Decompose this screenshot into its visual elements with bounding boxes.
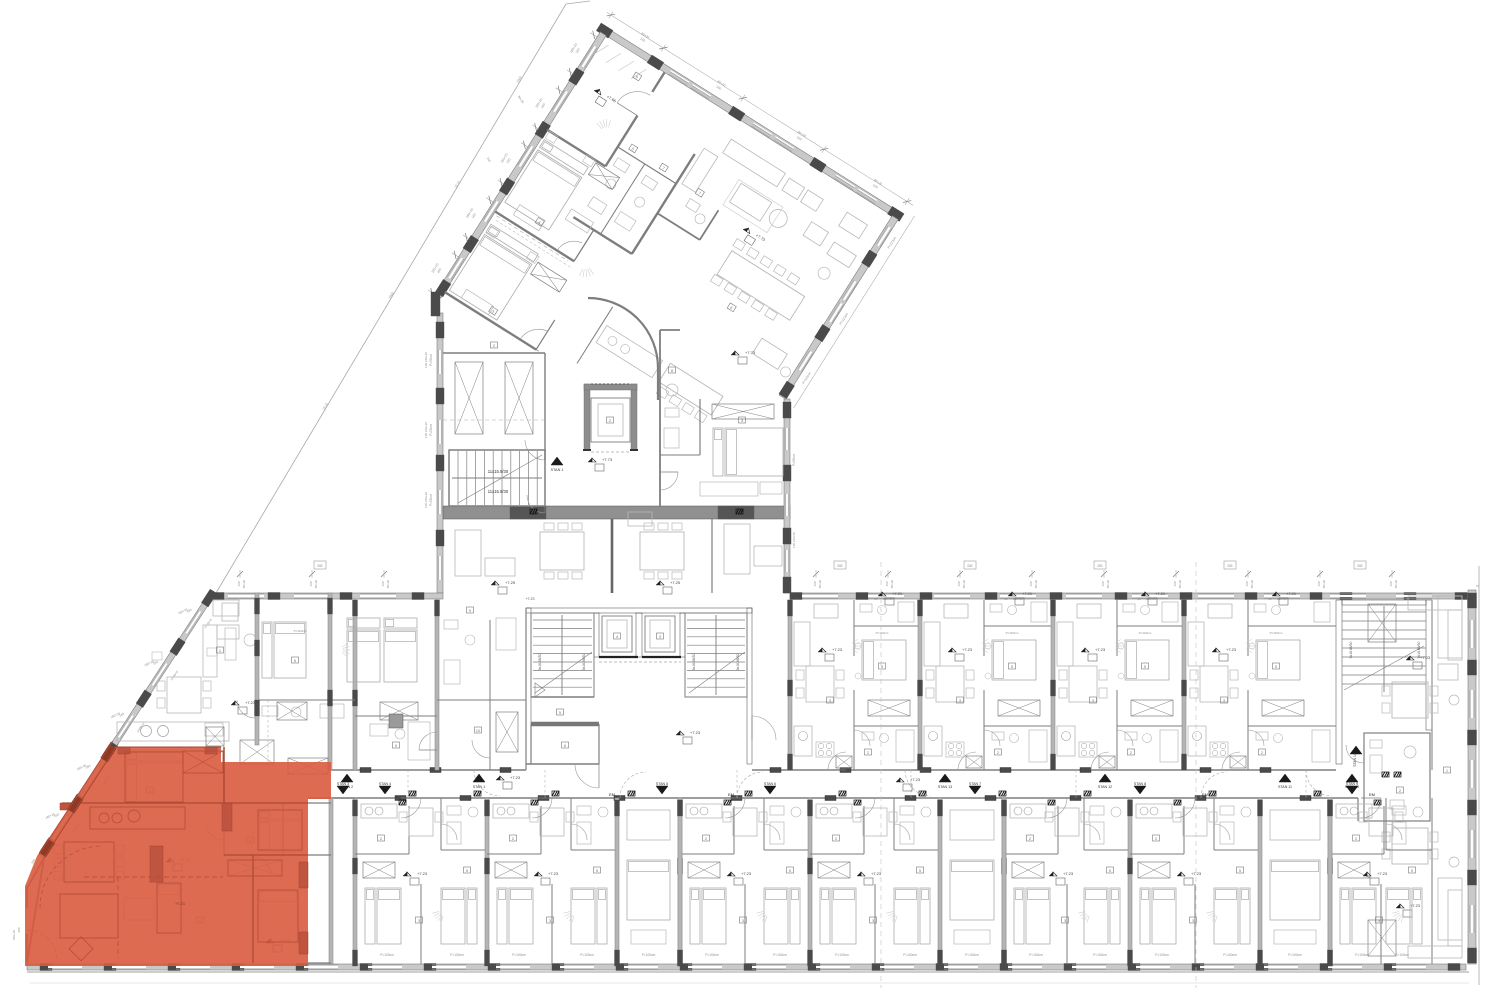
svg-text:+7.23: +7.23 xyxy=(1095,647,1106,652)
svg-text:+7.23: +7.23 xyxy=(548,871,559,876)
svg-text:80+20: 80+20 xyxy=(962,579,966,588)
svg-text:STAN 5: STAN 5 xyxy=(656,782,668,786)
svg-text:+7.23: +7.23 xyxy=(1420,655,1431,660)
svg-text:+7.21: +7.21 xyxy=(892,591,903,596)
svg-text:160: 160 xyxy=(1101,581,1105,586)
svg-text:80+20: 80+20 xyxy=(1034,579,1038,588)
svg-text:160: 160 xyxy=(1317,581,1321,586)
svg-text:+7.21: +7.21 xyxy=(1022,591,1033,596)
svg-text:DG: DG xyxy=(1227,564,1232,568)
svg-text:200: 200 xyxy=(17,927,21,932)
svg-text:80+20: 80+20 xyxy=(1106,579,1110,588)
svg-text:160 240+20: 160 240+20 xyxy=(424,352,428,368)
svg-text:+7.23: +7.23 xyxy=(1377,871,1388,876)
svg-text:+7.23: +7.23 xyxy=(417,871,428,876)
svg-text:+7.23: +7.23 xyxy=(832,647,843,652)
svg-text:P=50cm: P=50cm xyxy=(792,454,796,466)
svg-text:STAN 9: STAN 9 xyxy=(1346,782,1358,786)
svg-text:+7.25: +7.25 xyxy=(505,580,516,585)
svg-text:+7.23: +7.23 xyxy=(962,647,973,652)
svg-text:P=50cm: P=50cm xyxy=(429,424,433,436)
svg-text:10: 10 xyxy=(476,728,481,733)
svg-text:+7.25: +7.25 xyxy=(670,580,681,585)
svg-text:80+20: 80+20 xyxy=(1178,579,1182,588)
svg-text:160: 160 xyxy=(309,581,313,586)
svg-text:DG: DG xyxy=(1357,564,1362,568)
svg-text:STAN 12: STAN 12 xyxy=(1098,785,1112,789)
svg-text:+7.73: +7.73 xyxy=(745,350,756,355)
svg-text:DG: DG xyxy=(317,564,322,568)
svg-text:P=50cm: P=50cm xyxy=(429,494,433,506)
svg-text:+7.21: +7.21 xyxy=(175,901,186,906)
svg-text:STAN 6: STAN 6 xyxy=(764,782,776,786)
svg-text:11x15.9/30: 11x15.9/30 xyxy=(488,489,509,494)
svg-text:80: 80 xyxy=(1004,597,1008,601)
svg-text:80+20: 80+20 xyxy=(386,579,390,588)
svg-text:160 240+20: 160 240+20 xyxy=(424,492,428,508)
svg-text:80+20: 80+20 xyxy=(890,579,894,588)
svg-text:P=100cm: P=100cm xyxy=(876,631,889,635)
svg-text:EM: EM xyxy=(1202,792,1208,797)
svg-text:P=100cm: P=100cm xyxy=(1155,953,1169,957)
svg-text:160: 160 xyxy=(957,581,961,586)
svg-text:P=100cm: P=100cm xyxy=(642,953,656,957)
svg-text:80: 80 xyxy=(1268,597,1272,601)
svg-text:9x16.66/30: 9x16.66/30 xyxy=(736,653,740,670)
svg-text:360+20: 360+20 xyxy=(12,930,16,940)
svg-text:EM: EM xyxy=(609,792,615,797)
svg-text:+7.21: +7.21 xyxy=(1155,591,1166,596)
svg-text:STAN 7: STAN 7 xyxy=(969,782,981,786)
svg-text:160: 160 xyxy=(885,581,889,586)
svg-text:160: 160 xyxy=(237,581,241,586)
svg-text:160: 160 xyxy=(1029,581,1033,586)
svg-text:80+20: 80+20 xyxy=(1322,579,1326,588)
svg-text:STAN 3: STAN 3 xyxy=(337,782,349,786)
svg-text:80+20: 80+20 xyxy=(1394,579,1398,588)
svg-text:STAN 8: STAN 8 xyxy=(1134,782,1146,786)
svg-text:+7.23: +7.23 xyxy=(510,775,521,780)
svg-text:P=100cm: P=100cm xyxy=(773,953,787,957)
svg-text:160 240+20: 160 240+20 xyxy=(424,422,428,438)
svg-text:P=100cm: P=100cm xyxy=(1270,631,1283,635)
svg-text:STAN 4: STAN 4 xyxy=(379,782,391,786)
svg-text:+7.21: +7.21 xyxy=(1286,591,1297,596)
svg-text:160: 160 xyxy=(813,581,817,586)
svg-text:160: 160 xyxy=(381,581,385,586)
svg-text:STAN 1: STAN 1 xyxy=(473,785,485,789)
svg-text:160 240+20: 160 240+20 xyxy=(792,532,796,548)
svg-text:P=100cm: P=100cm xyxy=(512,953,526,957)
svg-text:P=100cm: P=100cm xyxy=(965,953,979,957)
svg-text:P=100cm: P=100cm xyxy=(1223,953,1237,957)
svg-text:80: 80 xyxy=(874,597,878,601)
svg-text:80: 80 xyxy=(1137,597,1141,601)
svg-text:P=50cm: P=50cm xyxy=(429,354,433,366)
svg-text:P=100cm: P=100cm xyxy=(705,953,719,957)
svg-text:EM: EM xyxy=(728,792,734,797)
svg-text:P=100cm: P=100cm xyxy=(1006,631,1019,635)
svg-text:P=100cm: P=100cm xyxy=(294,629,307,633)
svg-text:160: 160 xyxy=(1389,581,1393,586)
svg-text:P=100cm: P=100cm xyxy=(450,953,464,957)
svg-text:9x16.66/30: 9x16.66/30 xyxy=(582,653,586,670)
svg-text:160: 160 xyxy=(1245,581,1249,586)
svg-text:9x16.66/30: 9x16.66/30 xyxy=(1349,641,1353,658)
svg-text:STAN 11: STAN 11 xyxy=(1278,785,1292,789)
svg-text:STAN 13: STAN 13 xyxy=(938,785,952,789)
svg-text:STAN 1: STAN 1 xyxy=(550,468,563,472)
svg-text:P=100cm: P=100cm xyxy=(1029,953,1043,957)
svg-text:DG: DG xyxy=(967,564,972,568)
svg-text:+7.23: +7.23 xyxy=(910,777,921,782)
svg-text:+7.23: +7.23 xyxy=(690,730,701,735)
svg-text:DG: DG xyxy=(1097,564,1102,568)
svg-text:+7.23: +7.23 xyxy=(1063,871,1074,876)
svg-text:P=100cm: P=100cm xyxy=(903,953,917,957)
svg-text:P=100cm: P=100cm xyxy=(1395,953,1409,957)
svg-text:+7.23: +7.23 xyxy=(871,871,882,876)
svg-text:80+20: 80+20 xyxy=(1250,579,1254,588)
svg-text:EM: EM xyxy=(1369,792,1375,797)
svg-text:+7.23: +7.23 xyxy=(1191,871,1202,876)
svg-text:+7.23: +7.23 xyxy=(741,871,752,876)
svg-text:P=100cm: P=100cm xyxy=(1355,953,1369,957)
svg-text:+7.23: +7.23 xyxy=(1226,647,1237,652)
svg-text:80+20: 80+20 xyxy=(818,579,822,588)
svg-text:DG: DG xyxy=(837,564,842,568)
svg-text:9x16.66/30: 9x16.66/30 xyxy=(538,653,542,670)
svg-text:P=100cm: P=100cm xyxy=(835,953,849,957)
svg-text:P=100cm: P=100cm xyxy=(1288,953,1302,957)
svg-text:80+20: 80+20 xyxy=(242,579,246,588)
svg-text:+7.23: +7.23 xyxy=(245,700,256,705)
svg-text:160: 160 xyxy=(1173,581,1177,586)
svg-text:+7.23: +7.23 xyxy=(525,597,534,601)
svg-text:P=100cm: P=100cm xyxy=(1093,953,1107,957)
svg-text:P=100cm: P=100cm xyxy=(380,953,394,957)
svg-text:80+20: 80+20 xyxy=(314,579,318,588)
svg-text:9x16.66/30: 9x16.66/30 xyxy=(692,653,696,670)
svg-text:+7.73: +7.73 xyxy=(602,457,613,462)
svg-text:11x15.9/30: 11x15.9/30 xyxy=(488,469,509,474)
svg-text:P=100cm: P=100cm xyxy=(580,953,594,957)
svg-text:P=100cm: P=100cm xyxy=(1139,631,1152,635)
